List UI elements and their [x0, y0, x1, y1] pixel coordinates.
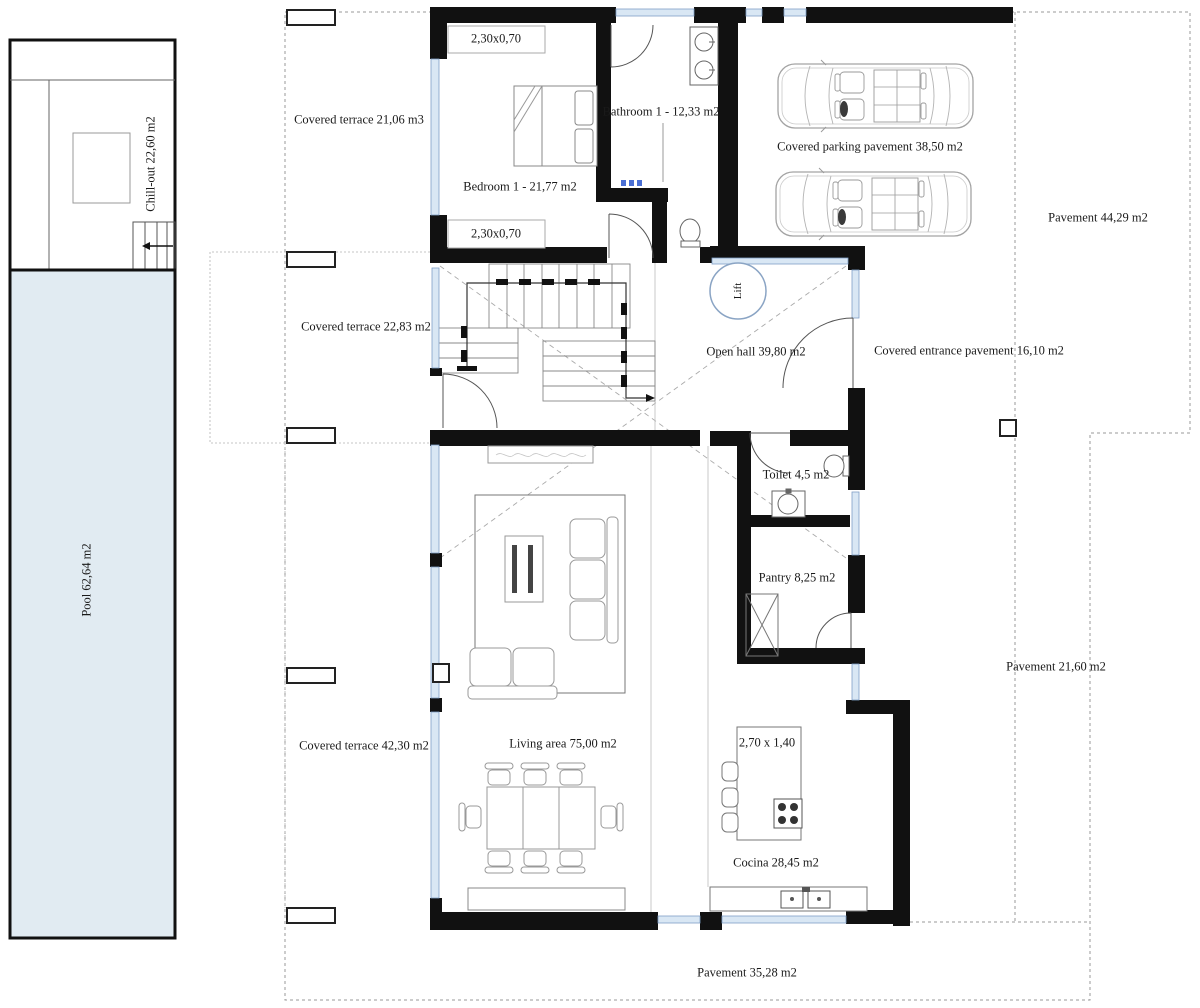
sofa-right	[570, 517, 618, 643]
hob-icon	[774, 799, 802, 828]
window	[722, 916, 846, 923]
window	[658, 916, 700, 923]
label-open-hall: Open hall 39,80 m2	[706, 345, 805, 360]
stool	[722, 762, 738, 781]
column	[287, 908, 335, 923]
label-terrace-bottom: Covered terrace 42,30 m2	[299, 739, 429, 754]
interior-lines	[651, 262, 708, 912]
door-bathroom	[611, 25, 653, 67]
column	[287, 668, 335, 683]
window	[431, 712, 439, 898]
label-kitchen: Cocina 28,45 m2	[733, 856, 819, 871]
stair-guide-line	[467, 283, 646, 398]
kitchen-counter	[710, 887, 867, 911]
label-chill-out: Chill-out 22,60 m2	[144, 116, 159, 212]
window	[432, 268, 439, 368]
label-pavement-bottom: Pavement 35,28 m2	[697, 966, 797, 981]
toiletries	[621, 180, 642, 186]
window	[784, 9, 806, 16]
label-island: 2,70 x 1,40	[739, 736, 795, 751]
window	[431, 445, 439, 553]
column	[433, 664, 449, 682]
stool	[722, 813, 738, 832]
label-wardrobe-bottom: 2,30x0,70	[471, 227, 521, 242]
window	[616, 9, 694, 16]
window	[852, 664, 859, 700]
label-pool: Pool 62,64 m2	[80, 543, 95, 616]
column	[287, 10, 335, 25]
wc-tank	[681, 241, 700, 247]
kitchen-furniture	[710, 727, 867, 911]
label-toilet: Toilet 4,5 m2	[763, 468, 830, 483]
bed	[514, 86, 597, 166]
tv-unit	[505, 536, 543, 602]
sink-icon	[778, 494, 798, 514]
label-parking: Covered parking pavement 38,50 m2	[777, 140, 963, 155]
living-furniture	[459, 446, 625, 910]
label-pavement-right: Pavement 44,29 m2	[1048, 211, 1148, 226]
label-living: Living area 75,00 m2	[509, 737, 617, 752]
bathroom-fixtures	[621, 27, 718, 247]
label-bedroom1: Bedroom 1 - 21,77 m2	[463, 180, 577, 195]
label-entrance: Covered entrance pavement 16,10 m2	[874, 344, 1064, 359]
column	[287, 252, 335, 267]
bedroom-furniture	[448, 26, 597, 248]
toilet-fixtures	[772, 455, 849, 517]
window	[431, 59, 439, 215]
column	[287, 428, 335, 443]
door-bedroom-hall	[609, 214, 653, 258]
label-pantry: Pantry 8,25 m2	[759, 571, 836, 586]
label-pavement-se: Pavement 21,60 m2	[1006, 660, 1106, 675]
window	[746, 9, 762, 16]
label-terrace-mid: Covered terrace 22,83 m2	[301, 320, 431, 335]
label-lift: Lift	[732, 283, 744, 300]
column	[1000, 420, 1016, 436]
floor-plan-drawing	[0, 0, 1200, 1008]
sofa-bottom	[468, 648, 557, 699]
window	[852, 270, 859, 318]
label-bathroom1: Bathroom 1 - 12,33 m2	[602, 105, 719, 120]
stool	[722, 788, 738, 807]
dining-set	[459, 763, 623, 873]
label-terrace-top: Covered terrace 21,06 m3	[294, 113, 424, 128]
window	[852, 492, 859, 555]
terrace-outline	[210, 252, 430, 908]
car-1	[778, 60, 973, 132]
door-terrace-stairs	[443, 374, 497, 428]
sideboard-bottom	[468, 888, 625, 910]
label-wardrobe-top: 2,30x0,70	[471, 32, 521, 47]
door-pantry	[816, 613, 851, 648]
floor-plan: Chill-out 22,60 m2 Pool 62,64 m2 Covered…	[0, 0, 1200, 1008]
car-2	[776, 168, 971, 240]
wc-icon	[680, 219, 700, 243]
